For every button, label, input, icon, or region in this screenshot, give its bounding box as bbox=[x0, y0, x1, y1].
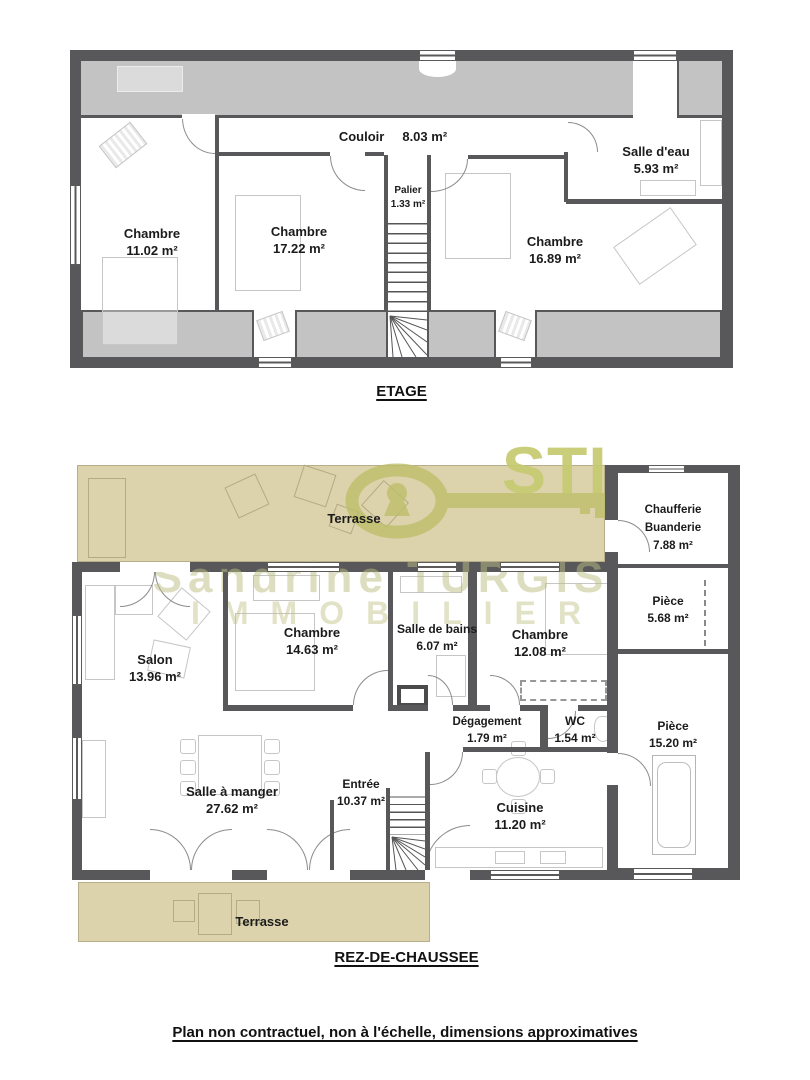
door-opening bbox=[120, 562, 190, 572]
room-name: Chaufferie Buanderie bbox=[623, 501, 723, 537]
room-name: Terrasse bbox=[294, 510, 414, 527]
room-label-terrasse-nord: Terrasse bbox=[294, 510, 414, 527]
skylight-icon bbox=[498, 311, 532, 341]
room-area: 8.03 m² bbox=[402, 129, 447, 144]
etage-title: ETAGE bbox=[70, 383, 733, 400]
door-opening bbox=[150, 870, 232, 880]
window bbox=[258, 357, 292, 368]
room-area: 11.20 m² bbox=[460, 816, 580, 833]
attic-area bbox=[535, 310, 722, 357]
room-name: Cuisine bbox=[460, 799, 580, 816]
tv-unit-icon bbox=[82, 740, 106, 818]
interior-wall bbox=[365, 152, 384, 156]
stair-wall bbox=[384, 155, 388, 312]
room-label-couloir: Couloir8.03 m² bbox=[293, 128, 493, 145]
attic-area bbox=[295, 310, 388, 357]
room-area: 11.02 m² bbox=[92, 242, 212, 259]
chair-icon bbox=[540, 769, 555, 784]
desk-icon bbox=[613, 207, 697, 285]
door-opening bbox=[490, 705, 520, 711]
window bbox=[500, 562, 560, 572]
room-label-salon: Salon13.96 m² bbox=[95, 651, 215, 685]
room-label-terrasse-sud: Terrasse bbox=[202, 913, 322, 930]
interior-wall bbox=[605, 552, 618, 572]
interior-wall bbox=[215, 118, 219, 310]
chair-icon bbox=[180, 739, 196, 754]
sofa-icon bbox=[117, 66, 183, 92]
room-name: Chambre bbox=[480, 626, 600, 643]
room-name: Chambre bbox=[252, 624, 372, 641]
door-arc bbox=[330, 156, 365, 191]
room-name: Pièce bbox=[608, 593, 728, 610]
room-label-chambre2: Chambre17.22 m² bbox=[239, 223, 359, 257]
window bbox=[417, 562, 457, 572]
interior-wall bbox=[605, 465, 618, 520]
room-area: 10.37 m² bbox=[311, 793, 411, 810]
floor-plan-document: Couloir8.03 m² Salle d'eau5.93 m² Palier… bbox=[0, 0, 810, 1080]
kitchen-table-icon bbox=[496, 757, 540, 797]
room-name: Salon bbox=[95, 651, 215, 668]
room-label-wc: WC1.54 m² bbox=[525, 713, 625, 747]
window bbox=[633, 868, 693, 880]
room-label-piece-a: Pièce5.68 m² bbox=[608, 593, 728, 627]
rdc-title: REZ-DE-CHAUSSEE bbox=[70, 949, 743, 966]
room-name: Chambre bbox=[92, 225, 212, 242]
room-label-salle-manger: Salle à manger27.62 m² bbox=[162, 783, 302, 817]
bathtub-icon bbox=[652, 755, 696, 855]
room-name: Palier bbox=[378, 184, 438, 198]
interior-wall bbox=[223, 572, 228, 710]
chair-icon bbox=[264, 760, 280, 775]
room-area: 6.07 m² bbox=[377, 638, 497, 655]
room-name: Pièce bbox=[613, 718, 733, 735]
door-opening bbox=[182, 114, 215, 119]
etage-plan: Couloir8.03 m² Salle d'eau5.93 m² Palier… bbox=[70, 50, 733, 368]
dashed-closet bbox=[520, 680, 607, 701]
room-label-salle-eau: Salle d'eau5.93 m² bbox=[586, 143, 726, 177]
side-table-icon bbox=[173, 900, 195, 922]
room-area: 7.88 m² bbox=[623, 537, 723, 555]
room-area: 27.62 m² bbox=[162, 800, 302, 817]
room-name: Entrée bbox=[311, 776, 411, 793]
interior-wall bbox=[219, 152, 330, 156]
vanity-icon bbox=[640, 180, 696, 196]
room-label-chambre3: Chambre16.89 m² bbox=[495, 233, 615, 267]
skylight-icon bbox=[99, 122, 148, 169]
room-name: WC bbox=[525, 713, 625, 730]
stair-winder-icon bbox=[388, 312, 427, 357]
chair-icon bbox=[264, 739, 280, 754]
window bbox=[490, 870, 560, 880]
room-area: 1.54 m² bbox=[525, 730, 625, 747]
room-area: 5.68 m² bbox=[608, 610, 728, 627]
door-opening bbox=[425, 870, 470, 880]
lounger-icon bbox=[88, 478, 126, 558]
window bbox=[648, 465, 685, 473]
room-area: 13.96 m² bbox=[95, 668, 215, 685]
interior-wall bbox=[618, 649, 728, 654]
door-opening bbox=[548, 705, 578, 711]
watermark-agency-name: Sandrine TURGIS bbox=[111, 556, 651, 600]
room-area: 5.93 m² bbox=[586, 160, 726, 177]
interior-wall bbox=[468, 155, 566, 159]
stairs bbox=[388, 215, 427, 312]
door-opening bbox=[428, 705, 453, 711]
room-name: Terrasse bbox=[202, 913, 322, 930]
interior-wall bbox=[564, 152, 568, 202]
room-label-cuisine: Cuisine11.20 m² bbox=[460, 799, 580, 833]
room-label-chambre4: Chambre14.63 m² bbox=[252, 624, 372, 658]
room-label-piece-b: Pièce15.20 m² bbox=[613, 718, 733, 752]
room-area: 15.20 m² bbox=[613, 735, 733, 752]
attic-area bbox=[427, 310, 496, 357]
window bbox=[419, 50, 456, 61]
kitchen-sink-icon bbox=[495, 851, 525, 864]
room-name: Chambre bbox=[495, 233, 615, 250]
window bbox=[633, 50, 677, 61]
interior-wall bbox=[425, 752, 430, 870]
room-label-chambre5: Chambre12.08 m² bbox=[480, 626, 600, 660]
interior-wall bbox=[607, 785, 618, 870]
stair-wall bbox=[427, 155, 431, 312]
bed-icon bbox=[102, 257, 178, 345]
duct-shaft bbox=[397, 685, 428, 707]
room-area: 1.33 m² bbox=[378, 198, 438, 212]
room-label-chaufferie: Chaufferie Buanderie7.88 m² bbox=[623, 501, 723, 555]
skylight-icon bbox=[256, 311, 290, 341]
stair-winder-icon bbox=[390, 835, 425, 870]
door-opening bbox=[267, 870, 350, 880]
interior-wall bbox=[618, 564, 728, 568]
room-name: Couloir bbox=[339, 129, 385, 144]
room-name: Salle de bains bbox=[377, 621, 497, 638]
room-area: 14.63 m² bbox=[252, 641, 372, 658]
door-arc bbox=[182, 118, 215, 154]
window bbox=[72, 615, 82, 685]
footer-note: Plan non contractuel, non à l'échelle, d… bbox=[0, 1024, 810, 1041]
etage-title-text: ETAGE bbox=[376, 383, 427, 400]
window bbox=[72, 737, 82, 800]
stove-icon bbox=[540, 851, 566, 864]
room-area: 16.89 m² bbox=[495, 250, 615, 267]
room-label-chambre1: Chambre11.02 m² bbox=[92, 225, 212, 259]
balcony-notch bbox=[419, 61, 456, 77]
window bbox=[267, 562, 340, 572]
window bbox=[70, 185, 81, 265]
attic-area bbox=[677, 61, 722, 118]
room-label-salle-bains: Salle de bains6.07 m² bbox=[377, 621, 497, 655]
rdc-plan: STI Sandrine TURGIS IMMOBILIER Terrasse … bbox=[70, 463, 743, 963]
room-name: Salle d'eau bbox=[586, 143, 726, 160]
room-name: Chambre bbox=[239, 223, 359, 240]
window bbox=[500, 357, 532, 368]
bathtub-inner bbox=[657, 762, 691, 848]
room-label-entree: Entrée10.37 m² bbox=[311, 776, 411, 810]
chair-icon bbox=[180, 760, 196, 775]
room-area: 12.08 m² bbox=[480, 643, 600, 660]
room-name: Salle à manger bbox=[162, 783, 302, 800]
chair-icon bbox=[482, 769, 497, 784]
room-label-palier: Palier1.33 m² bbox=[378, 184, 438, 212]
interior-wall bbox=[330, 800, 334, 870]
rdc-title-text: REZ-DE-CHAUSSEE bbox=[334, 949, 478, 966]
door-opening bbox=[353, 705, 388, 711]
interior-wall bbox=[566, 199, 722, 204]
footer-note-text: Plan non contractuel, non à l'échelle, d… bbox=[172, 1024, 637, 1041]
room-area: 17.22 m² bbox=[239, 240, 359, 257]
watermark-logo-text: STI bbox=[502, 437, 608, 503]
